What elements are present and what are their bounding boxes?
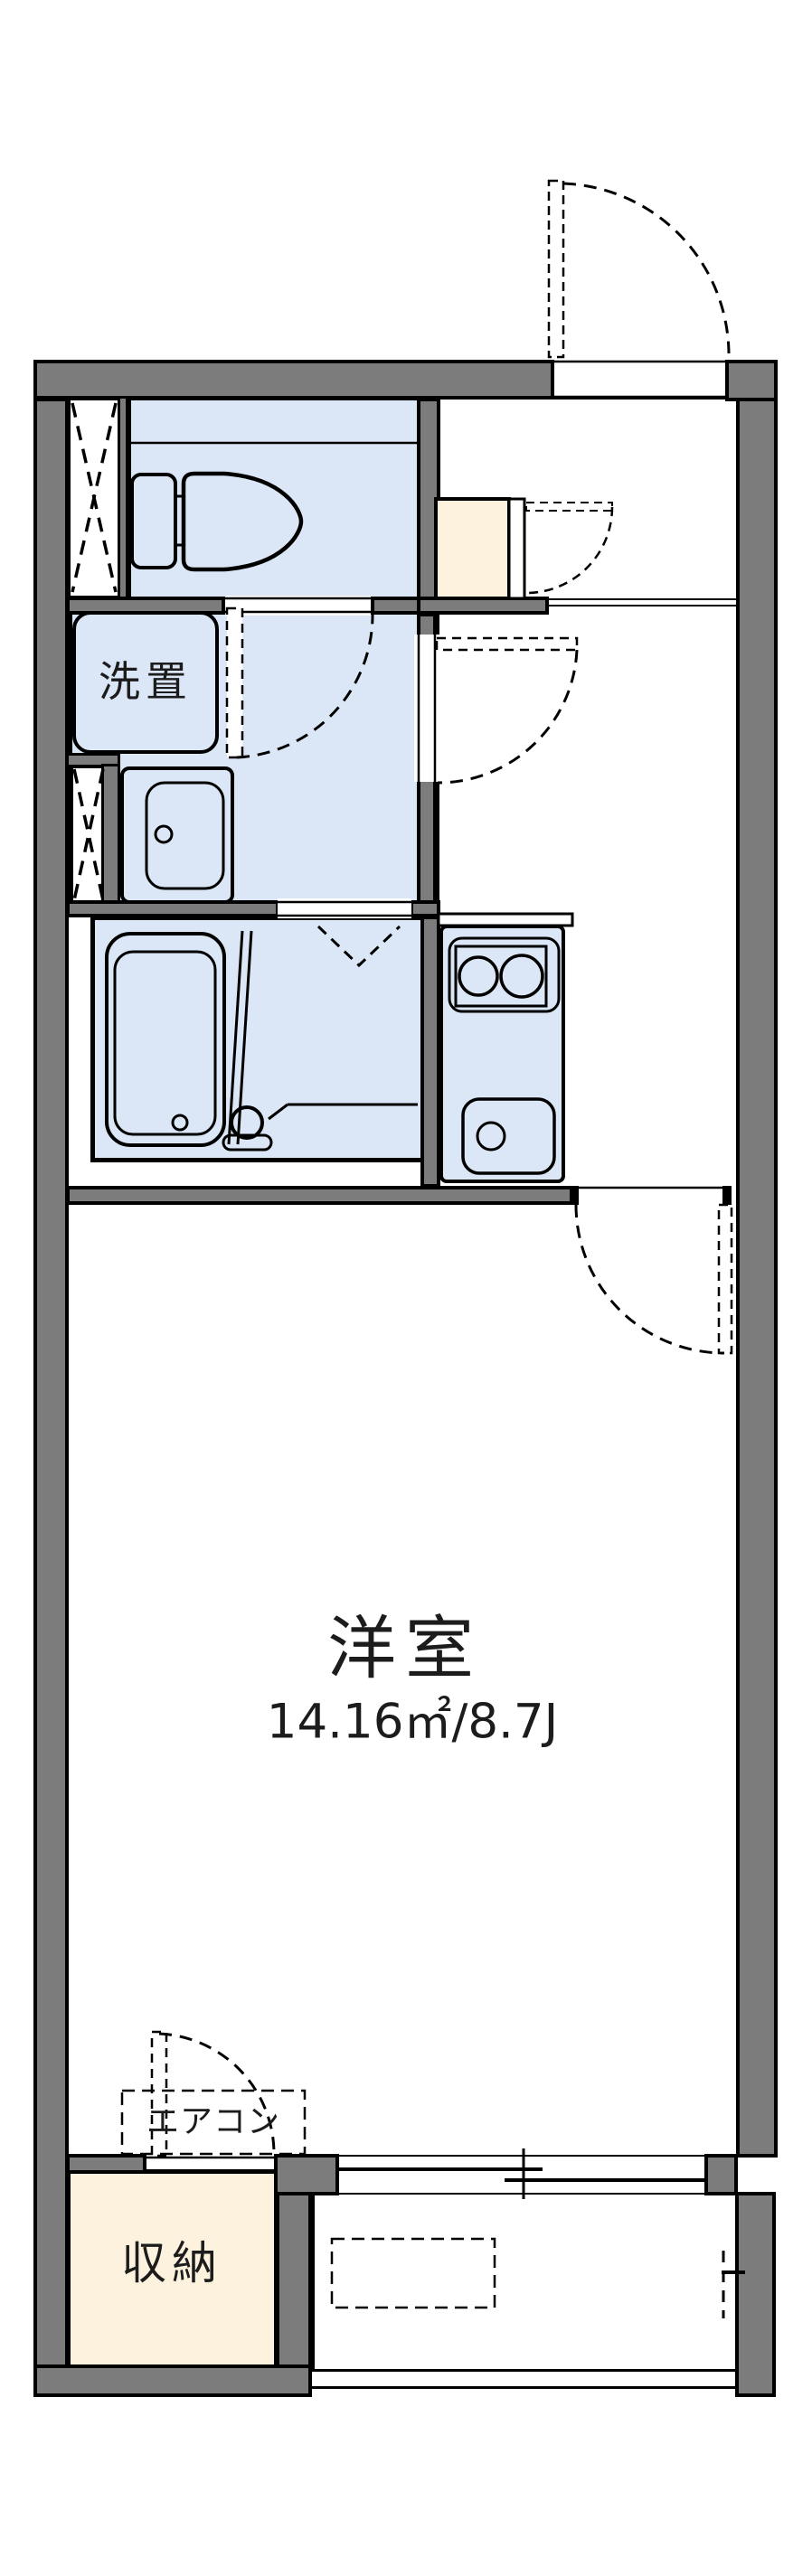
- bathtub-icon: [107, 931, 418, 1150]
- entrance-door-leaf-icon: [549, 181, 563, 357]
- main-room-area-label: 14.16㎡/8.7J: [267, 1698, 559, 1746]
- toilet-door: [225, 596, 373, 757]
- main-room-door: [570, 1186, 732, 1353]
- washroom-door: [414, 635, 577, 783]
- washroom-door-swing-icon: [438, 650, 577, 783]
- main-room-door-leaf-icon: [719, 1205, 732, 1353]
- plan-lineart: [0, 0, 812, 2576]
- toilet-icon: [131, 443, 419, 569]
- entrance-doorway: [549, 181, 729, 397]
- bathroom-opening: [278, 898, 411, 965]
- storage-label: 収納: [121, 2241, 222, 2286]
- shoe-cabinet-icon: [436, 499, 612, 598]
- genkan-step: [549, 599, 736, 606]
- balcony-equipment: [332, 2239, 745, 2318]
- aircon-label: エアコン: [146, 2106, 280, 2139]
- sliding-window-icon: [339, 2148, 707, 2199]
- washbasin-icon: [122, 768, 232, 902]
- main-room-door-swing-icon: [576, 1205, 724, 1353]
- washer-space-label: 洗置: [99, 661, 193, 702]
- pipe-shaft-x-icon: [72, 403, 116, 900]
- floorplan: 洗置 洋室 14.16㎡/8.7J エアコン 収納: [0, 0, 812, 2576]
- bath-folding-door-icon: [318, 926, 400, 965]
- entrance-door-swing-icon: [563, 183, 729, 353]
- toilet-door-swing-icon: [237, 612, 373, 757]
- kitchen-unit-icon: [439, 914, 572, 1181]
- balcony-washer-space-icon: [332, 2239, 495, 2308]
- main-room-label: 洋室: [327, 1614, 483, 1683]
- toilet-door-leaf-icon: [227, 608, 242, 757]
- washroom-door-leaf-icon: [437, 638, 577, 650]
